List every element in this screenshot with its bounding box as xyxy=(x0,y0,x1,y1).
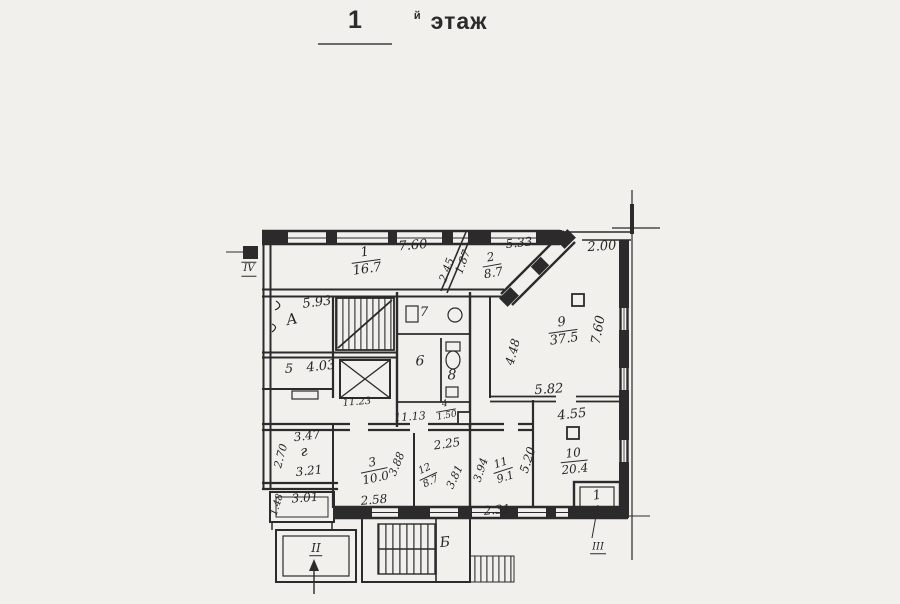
dim-2-00: 2.00 xyxy=(587,239,617,255)
dim-2-70: 2.70 xyxy=(272,443,289,470)
room-6-number: 6 xyxy=(416,355,425,370)
room-2-area-label: 28.7 xyxy=(480,249,504,280)
room-4-area-label: 41.50 xyxy=(434,398,458,423)
entrance-iv-label: IV xyxy=(241,262,256,277)
dim-2-25: 2.25 xyxy=(433,436,461,452)
dim-7-60-right: 7.60 xyxy=(590,315,608,346)
room-12-area-label: 128.7 xyxy=(414,461,441,491)
dim-3-47: 3.47 xyxy=(293,428,321,444)
room-9-area-label: 937.5 xyxy=(547,314,580,348)
plan-labels-layer: 7.60116.72.451.875.3328.72.005.93А54.031… xyxy=(0,0,900,604)
dim-3-01: 3.01 xyxy=(291,491,319,505)
room-3-area-label: 310.0 xyxy=(358,453,390,486)
entrance-iii-label: III xyxy=(590,542,606,554)
dim-1-87: 1.87 xyxy=(453,249,472,276)
dim-5-33: 5.33 xyxy=(505,235,533,250)
dim-5-82: 5.82 xyxy=(534,382,564,398)
dim-1-48: 1.48 xyxy=(270,493,287,517)
dim-2-31: 2.31 xyxy=(483,503,511,518)
stairwell-a-label: А xyxy=(285,311,299,329)
porch-1-label: 1 xyxy=(592,489,602,504)
scanned-floor-plan-page: 1 й этаж xyxy=(0,0,900,604)
room-5-number: 5 xyxy=(285,363,293,377)
room-1-area-label: 116.7 xyxy=(350,244,383,278)
dim-4-03: 4.03 xyxy=(306,359,336,376)
dim-3-88: 3.88 xyxy=(387,450,407,477)
room-11-area-label: 119.1 xyxy=(489,455,516,486)
dim-3-94: 3.94 xyxy=(472,457,491,484)
dim-5-20: 5.20 xyxy=(518,445,538,474)
dim-3-81: 3.81 xyxy=(445,463,466,490)
stairwell-b-label: Б xyxy=(439,535,451,551)
dim-7-60-top: 7.60 xyxy=(398,238,428,254)
area-11-13: 11.13 xyxy=(394,410,426,424)
room-7-number: 7 xyxy=(420,306,428,320)
dim-2-58: 2.58 xyxy=(360,493,388,508)
dim-4-48: 4.48 xyxy=(503,337,522,366)
room-g-label: г xyxy=(299,444,309,460)
dim-5-93: 5.93 xyxy=(302,294,332,311)
room-10-area-label: 1020.4 xyxy=(559,446,589,477)
area-11-23: 11.23 xyxy=(342,397,371,409)
dim-4-55: 4.55 xyxy=(557,407,587,424)
dim-3-21: 3.21 xyxy=(295,463,323,478)
entrance-ii-label: II xyxy=(309,542,322,556)
room-8-number: 8 xyxy=(448,369,457,384)
